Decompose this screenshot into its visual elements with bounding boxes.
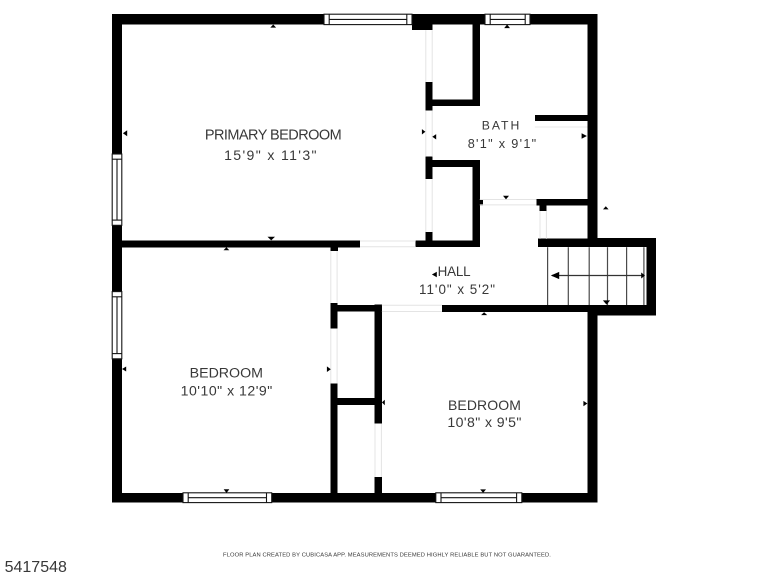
svg-text:PRIMARY BEDROOM: PRIMARY BEDROOM <box>205 128 341 144</box>
svg-text:5417548: 5417548 <box>5 559 67 576</box>
svg-text:BEDROOM: BEDROOM <box>448 397 521 413</box>
svg-text:15'9" x 11'3": 15'9" x 11'3" <box>224 147 318 163</box>
svg-text:10'10" x 12'9": 10'10" x 12'9" <box>181 382 273 398</box>
svg-text:8'1" x 9'1": 8'1" x 9'1" <box>468 137 538 151</box>
svg-text:10'8" x 9'5": 10'8" x 9'5" <box>447 414 522 430</box>
svg-text:BEDROOM: BEDROOM <box>190 366 263 382</box>
svg-text:BATH: BATH <box>482 119 522 133</box>
svg-text:11'0" x 5'2": 11'0" x 5'2" <box>419 282 496 297</box>
svg-text:FLOOR PLAN CREATED BY CUBICASA: FLOOR PLAN CREATED BY CUBICASA APP. MEAS… <box>223 553 551 559</box>
svg-text:HALL: HALL <box>438 264 471 279</box>
